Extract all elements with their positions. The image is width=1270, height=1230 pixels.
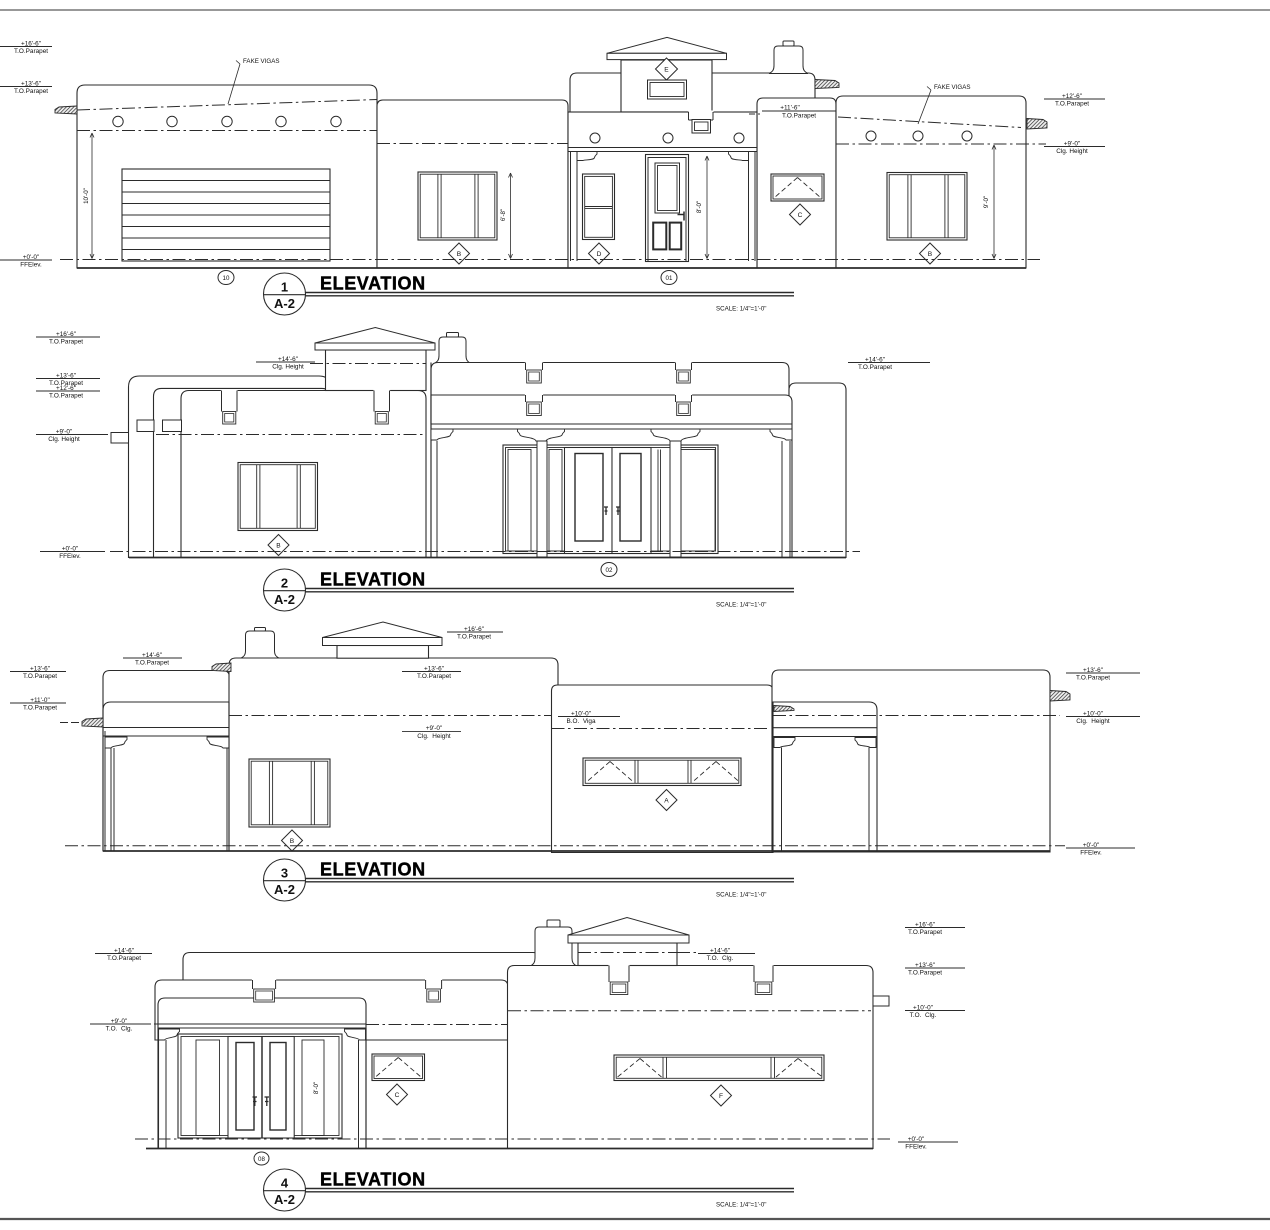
svg-text:T.O.Parapet: T.O.Parapet <box>1076 674 1110 681</box>
svg-text:T.O. Clg.: T.O. Clg. <box>106 1025 133 1032</box>
svg-text:A: A <box>664 797 669 804</box>
svg-text:D: D <box>597 251 602 258</box>
svg-text:F: F <box>719 1093 723 1100</box>
svg-text:T.O.Parapet: T.O.Parapet <box>14 88 48 95</box>
svg-text:B: B <box>276 542 281 549</box>
svg-text:B: B <box>928 251 933 258</box>
svg-text:A-2: A-2 <box>274 592 295 607</box>
svg-text:Clg. Height: Clg. Height <box>48 436 80 443</box>
svg-text:10'-0": 10'-0" <box>83 188 90 204</box>
svg-text:FAKE VIGAS: FAKE VIGAS <box>934 84 970 91</box>
svg-text:A-2: A-2 <box>274 1192 295 1207</box>
svg-text:T.O.Parapet: T.O.Parapet <box>49 338 83 345</box>
svg-text:+11'-6": +11'-6" <box>780 105 800 112</box>
svg-text:ELEVATION: ELEVATION <box>320 860 426 880</box>
svg-text:T.O.Parapet: T.O.Parapet <box>107 955 141 962</box>
svg-text:ELEVATION: ELEVATION <box>320 570 426 590</box>
svg-text:T.O.Parapet: T.O.Parapet <box>908 929 942 936</box>
svg-text:3: 3 <box>281 866 288 881</box>
svg-text:A-2: A-2 <box>274 882 295 897</box>
svg-text:8'-0": 8'-0" <box>313 1082 320 1094</box>
svg-text:2: 2 <box>281 576 288 591</box>
svg-text:02: 02 <box>606 567 613 574</box>
svg-text:T.O.Parapet: T.O.Parapet <box>1055 100 1089 107</box>
svg-text:A-2: A-2 <box>274 296 295 311</box>
svg-text:ELEVATION: ELEVATION <box>320 1170 426 1190</box>
svg-text:C: C <box>395 1092 400 1099</box>
svg-text:T.O.Parapet: T.O.Parapet <box>457 633 491 640</box>
svg-text:FFElev.: FFElev. <box>20 261 42 268</box>
svg-text:SCALE: 1/4"=1'-0": SCALE: 1/4"=1'-0" <box>716 1202 766 1209</box>
svg-text:T.O.Parapet: T.O.Parapet <box>858 364 892 371</box>
svg-text:Clg. Height: Clg. Height <box>1056 148 1088 155</box>
svg-text:SCALE: 1/4"=1'-0": SCALE: 1/4"=1'-0" <box>716 306 766 313</box>
svg-text:SCALE: 1/4"=1'-0": SCALE: 1/4"=1'-0" <box>716 602 766 609</box>
svg-text:FFElev.: FFElev. <box>1080 849 1102 856</box>
svg-text:6'-8": 6'-8" <box>500 209 507 221</box>
svg-text:T.O.Parapet: T.O.Parapet <box>417 673 451 680</box>
svg-text:T.O.Parapet: T.O.Parapet <box>23 704 57 711</box>
svg-text:T.O.Parapet: T.O.Parapet <box>14 48 48 55</box>
svg-text:4: 4 <box>281 1176 289 1191</box>
svg-text:T.O. Clg.: T.O. Clg. <box>910 1012 937 1019</box>
svg-text:E: E <box>664 66 669 73</box>
svg-text:T.O.Parapet: T.O.Parapet <box>135 659 169 666</box>
svg-text:SCALE: 1/4"=1'-0": SCALE: 1/4"=1'-0" <box>716 892 766 899</box>
svg-text:FFElev.: FFElev. <box>905 1143 927 1150</box>
svg-text:8'-0": 8'-0" <box>696 201 703 213</box>
svg-text:FAKE VIGAS: FAKE VIGAS <box>243 58 279 65</box>
svg-text:C: C <box>798 212 803 219</box>
svg-text:T.O.Parapet: T.O.Parapet <box>782 113 816 120</box>
svg-text:Clg. Height: Clg. Height <box>272 363 304 370</box>
svg-text:Clg. Height: Clg. Height <box>417 733 451 740</box>
svg-text:T.O. Clg.: T.O. Clg. <box>707 955 734 962</box>
svg-text:T.O.Parapet: T.O.Parapet <box>49 392 83 399</box>
svg-text:ELEVATION: ELEVATION <box>320 274 426 294</box>
svg-text:Clg. Height: Clg. Height <box>1076 718 1110 725</box>
svg-text:1: 1 <box>281 280 288 295</box>
svg-text:9'-0": 9'-0" <box>983 196 990 208</box>
svg-text:08: 08 <box>258 1156 265 1163</box>
svg-text:FFElev.: FFElev. <box>59 553 81 560</box>
svg-text:T.O.Parapet: T.O.Parapet <box>23 673 57 680</box>
svg-text:B: B <box>290 838 295 845</box>
svg-text:T.O.Parapet: T.O.Parapet <box>908 969 942 976</box>
svg-text:B.O. Viga: B.O. Viga <box>566 718 595 725</box>
svg-text:10: 10 <box>223 275 230 282</box>
svg-text:B: B <box>457 251 462 258</box>
svg-text:01: 01 <box>666 275 673 282</box>
